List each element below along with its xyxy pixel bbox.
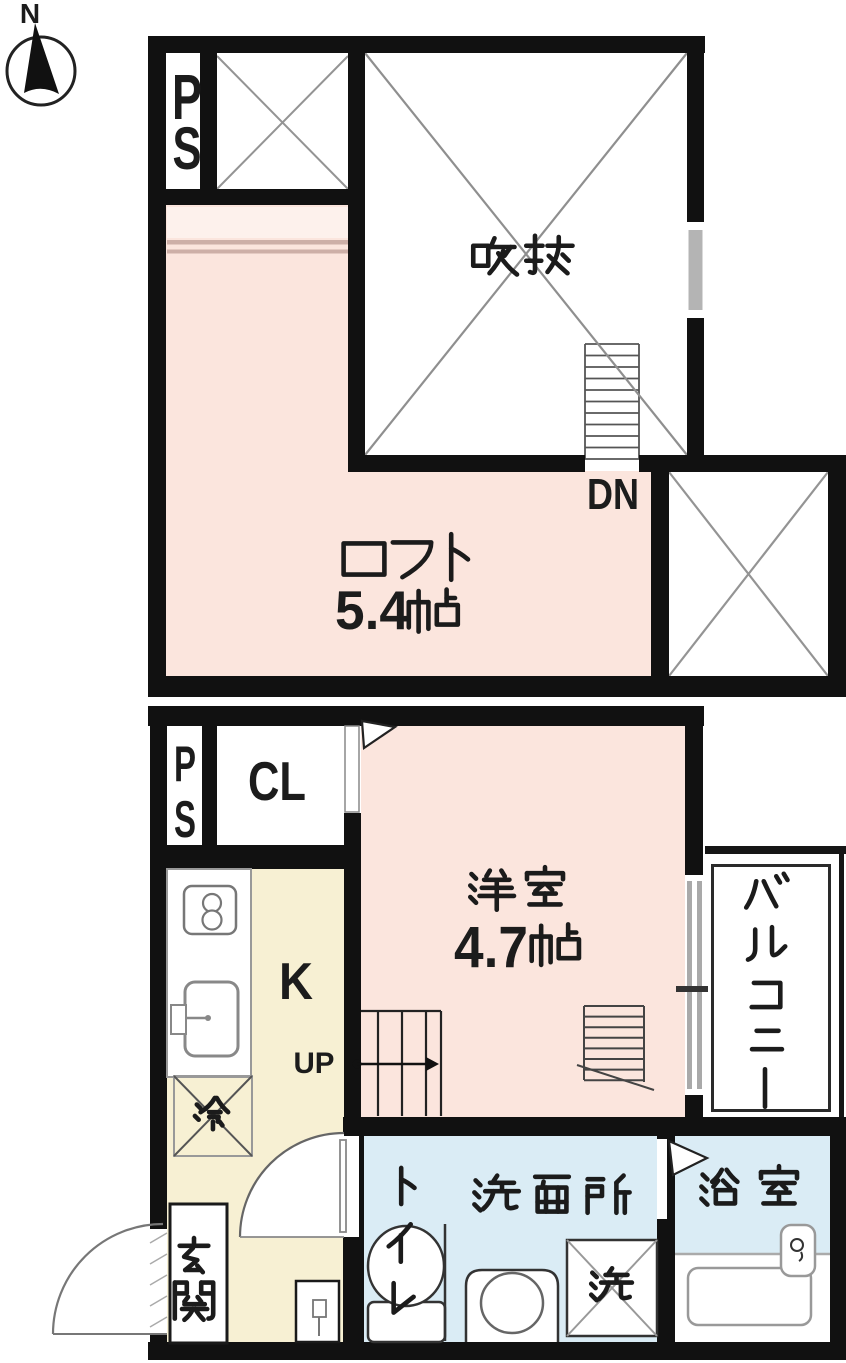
svg-text:CL: CL: [248, 750, 306, 812]
svg-text:4.7: 4.7: [454, 915, 528, 980]
svg-text:S: S: [173, 115, 202, 182]
svg-text:UP: UP: [294, 1047, 335, 1080]
svg-text:DN: DN: [587, 470, 639, 519]
svg-text:P: P: [174, 736, 196, 792]
svg-text:S: S: [174, 791, 196, 849]
svg-text:5.4: 5.4: [335, 579, 409, 641]
svg-text:N: N: [20, 0, 40, 29]
svg-text:K: K: [279, 953, 313, 1011]
